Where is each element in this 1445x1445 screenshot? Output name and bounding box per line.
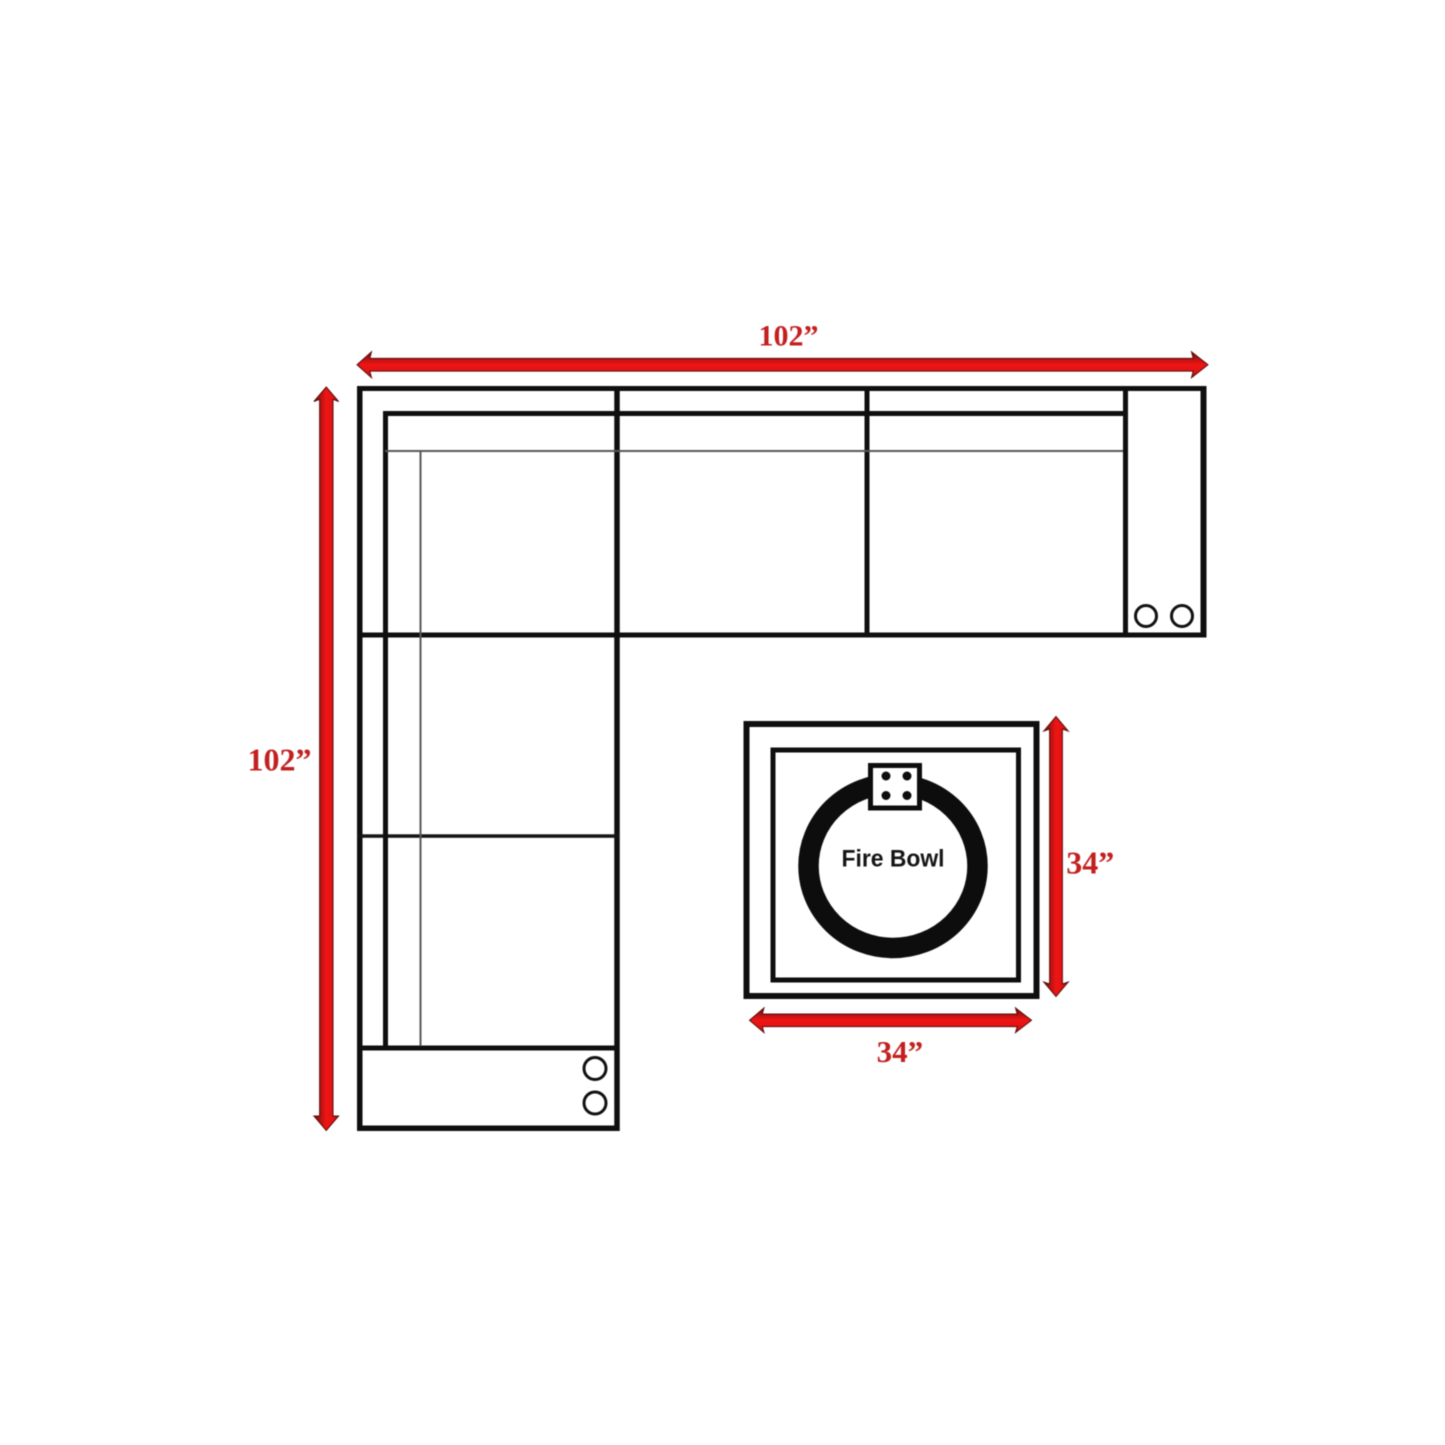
svg-text:Fire Bowl: Fire Bowl [842,846,945,873]
svg-text:34”: 34” [877,1034,924,1069]
svg-text:34”: 34” [1066,845,1114,881]
svg-text:102”: 102” [759,320,819,353]
svg-text:102”: 102” [248,742,312,778]
